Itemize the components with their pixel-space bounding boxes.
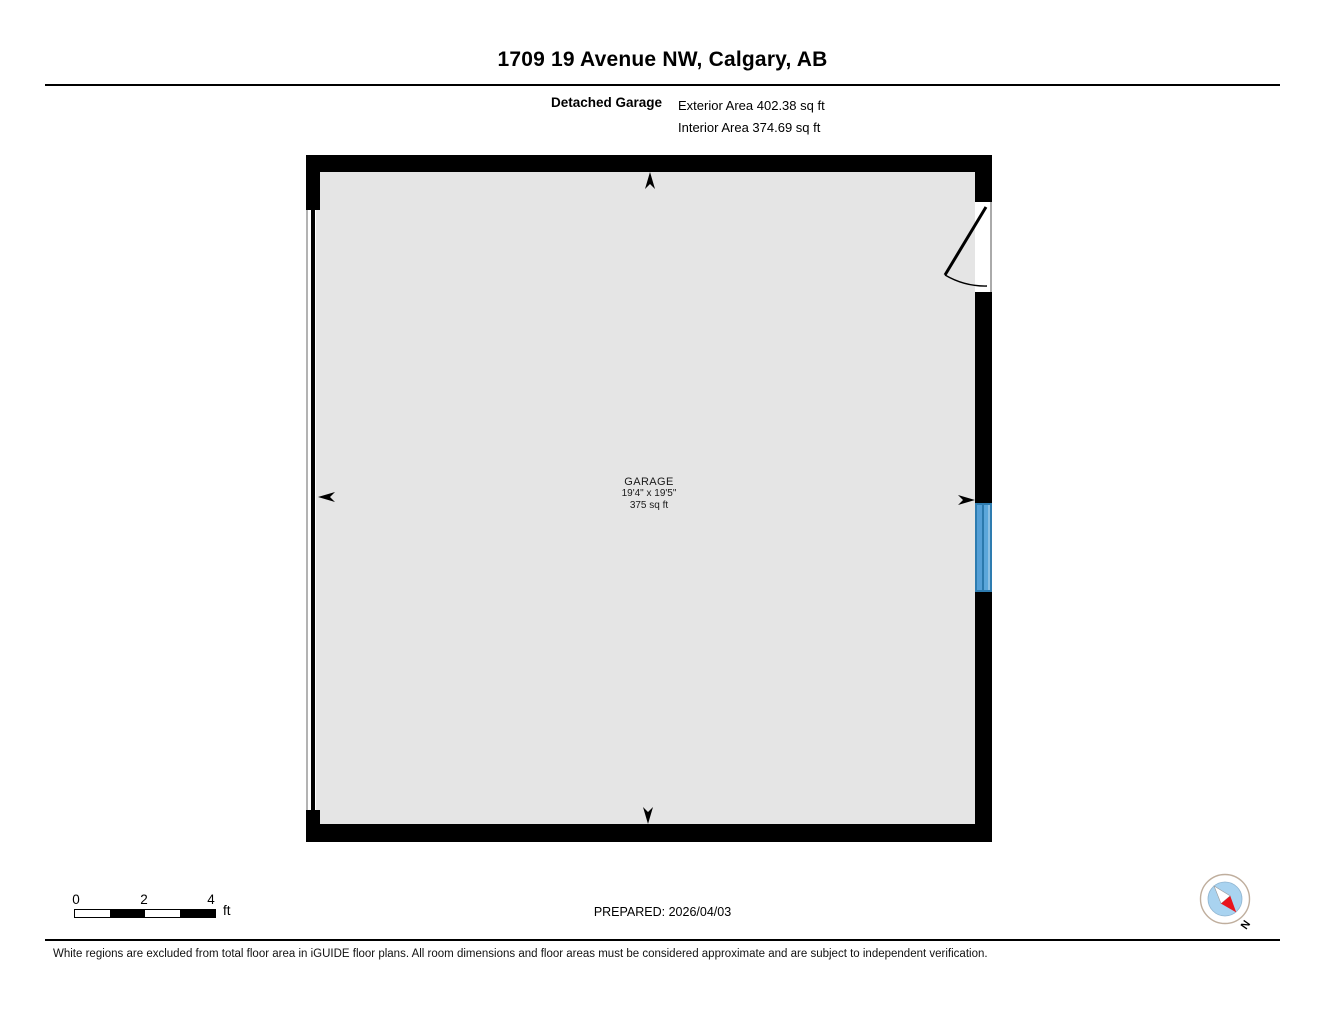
wall-west-upper-stub [306,155,320,210]
wall-south [306,824,992,842]
room-dimensions: 19'4" x 19'5" [306,488,992,500]
exterior-area: Exterior Area 402.38 sq ft [678,95,825,117]
compass-rose-icon: N [1199,873,1257,931]
door-opening-line [990,202,992,292]
prepared-date: PREPARED: 2026/04/03 [0,905,1325,919]
wall-north [306,155,992,172]
wall-east-lower [975,592,992,842]
wall-east-upper [975,155,992,202]
area-summary: Exterior Area 402.38 sq ft Interior Area… [678,95,825,138]
interior-area: Interior Area 374.69 sq ft [678,117,825,139]
wall-east-middle [975,292,992,503]
disclaimer-text: White regions are excluded from total fl… [53,948,1285,960]
floor-plan-page: 1709 19 Avenue NW, Calgary, AB Detached … [0,0,1325,1024]
window-icon [975,503,992,592]
page-title: 1709 19 Avenue NW, Calgary, AB [0,48,1325,72]
room-area: 375 sq ft [306,500,992,512]
plan-label: Detached Garage [551,95,662,110]
header-divider [45,84,1280,86]
room-label: GARAGE 19'4" x 19'5" 375 sq ft [306,476,992,512]
room-name: GARAGE [306,476,992,488]
floor-plan: GARAGE 19'4" x 19'5" 375 sq ft [306,155,992,842]
wall-west-lower-stub [306,810,320,842]
compass-north-label: N [1237,918,1251,931]
footer-divider [45,939,1280,941]
